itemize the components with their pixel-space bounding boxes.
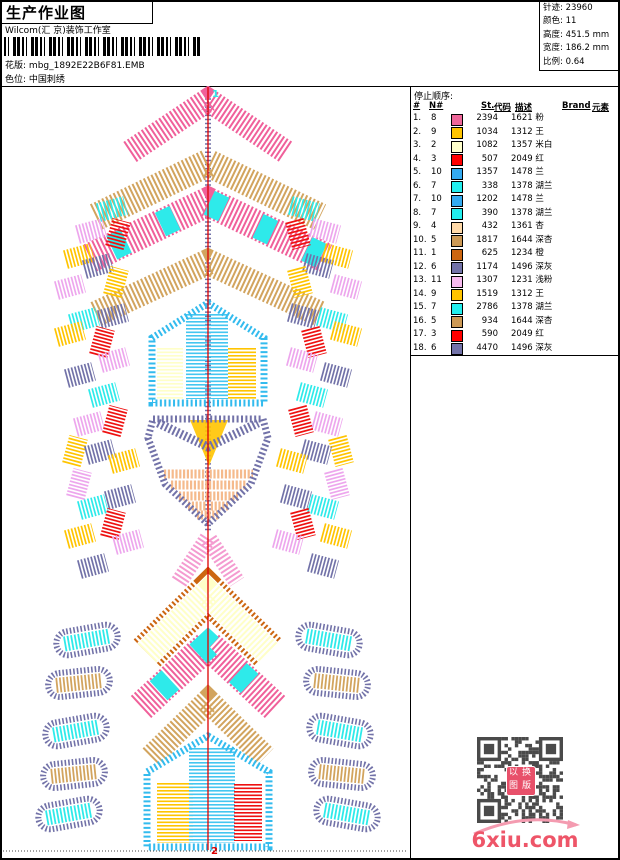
stop-stitches: 1174 xyxy=(464,261,498,275)
stop-row: 4. 3 507 2049 红 xyxy=(410,153,618,167)
stop-row: 5. 10 1357 1478 兰 xyxy=(410,166,618,180)
stop-row: 18. 6 4470 1496 深灰 xyxy=(410,342,618,356)
stop-row: 6. 7 338 1378 湖兰 xyxy=(410,180,618,194)
stop-stitches: 432 xyxy=(464,220,498,234)
thread-desc: 1312 王 xyxy=(511,288,544,302)
stop-needle: 6 xyxy=(431,261,436,275)
thread-color-swatch xyxy=(451,208,463,220)
thread-color-swatch xyxy=(451,303,463,315)
design-info-box: 针迹: 23960颜色: 11高度: 451.5 mm宽度: 186.2 mm比… xyxy=(539,2,619,71)
stop-row: 1. 8 2394 1621 粉 xyxy=(410,112,618,126)
info-value: 451.5 mm xyxy=(566,30,610,40)
qr-stamp-char: 换 xyxy=(522,769,531,778)
info-label: 颜色: xyxy=(543,16,563,26)
stop-stitches: 625 xyxy=(464,247,498,261)
stop-row: 7. 10 1202 1478 兰 xyxy=(410,193,618,207)
stop-needle: 3 xyxy=(431,328,436,342)
thread-desc: 1357 米白 xyxy=(511,139,552,153)
thread-desc: 1496 深灰 xyxy=(511,342,552,356)
pattern-file-line: 花版: mbg_1892E22B6F81.EMB xyxy=(5,58,145,71)
info-value: 11 xyxy=(566,16,577,26)
stop-seq: 5. xyxy=(413,166,421,180)
thread-color-swatch xyxy=(451,127,463,139)
stop-seq: 3. xyxy=(413,139,421,153)
info-row-0: 针迹: 23960 xyxy=(540,2,619,15)
info-row-1: 颜色: 11 xyxy=(540,15,619,28)
stop-row: 10. 5 1817 1644 深杏 xyxy=(410,234,618,248)
info-value: 23960 xyxy=(566,3,593,13)
stop-stitches: 507 xyxy=(464,153,498,167)
qr-stamp-char: 图 xyxy=(509,782,518,791)
thread-color-swatch xyxy=(451,330,463,342)
stop-needle: 7 xyxy=(431,207,436,221)
stop-row: 3. 2 1082 1357 米白 xyxy=(410,139,618,153)
thread-desc: 1231 浅粉 xyxy=(511,274,552,288)
thread-color-swatch xyxy=(451,168,463,180)
thread-color-swatch xyxy=(451,276,463,288)
thread-color-swatch xyxy=(451,316,463,328)
stop-needle: 10 xyxy=(431,166,442,180)
stop-needle: 6 xyxy=(431,342,436,356)
thread-color-swatch xyxy=(451,114,463,126)
thread-color-swatch xyxy=(451,181,463,193)
stop-seq: 6. xyxy=(413,180,421,194)
stop-seq: 11. xyxy=(413,247,427,261)
stop-stitches: 2394 xyxy=(464,112,498,126)
thread-desc: 1478 兰 xyxy=(511,166,544,180)
qr-center-stamp: 以换图版 xyxy=(506,766,536,796)
stop-stitches: 390 xyxy=(464,207,498,221)
thread-color-swatch xyxy=(451,195,463,207)
stop-seq: 13. xyxy=(413,274,427,288)
stop-row: 9. 4 432 1361 杏 xyxy=(410,220,618,234)
stop-stitches: 1202 xyxy=(464,193,498,207)
stop-stitches: 1817 xyxy=(464,234,498,248)
thread-desc: 1496 深灰 xyxy=(511,261,552,275)
thread-color-swatch xyxy=(451,141,463,153)
thread-desc: 1644 深杏 xyxy=(511,234,552,248)
stop-seq: 14. xyxy=(413,288,427,302)
info-row-4: 比例: 0.64 xyxy=(540,56,619,69)
info-value: 186.2 mm xyxy=(566,43,610,53)
stop-seq: 4. xyxy=(413,153,421,167)
stop-row: 15. 7 2786 1378 湖兰 xyxy=(410,301,618,315)
stop-stitches: 1082 xyxy=(464,139,498,153)
stop-needle: 5 xyxy=(431,234,436,248)
stop-seq: 15. xyxy=(413,301,427,315)
studio-name: Wilcom(汇 京)装饰工作室 xyxy=(5,23,111,36)
pattern-label: 花版: xyxy=(5,61,26,71)
thread-color-swatch xyxy=(451,235,463,247)
colorway-line: 色位: 中国刺绣 xyxy=(5,72,65,85)
thread-color-swatch xyxy=(451,249,463,261)
thread-desc: 1234 橙 xyxy=(511,247,544,261)
stop-seq: 10. xyxy=(413,234,427,248)
stop-seq: 8. xyxy=(413,207,421,221)
site-logo: 6xiu.com xyxy=(470,828,580,852)
thread-desc: 2049 红 xyxy=(511,328,544,342)
stop-row: 2. 9 1034 1312 王 xyxy=(410,126,618,140)
svg-text:2: 2 xyxy=(211,846,218,857)
stop-stitches: 1307 xyxy=(464,274,498,288)
thread-color-swatch xyxy=(451,289,463,301)
stop-col-Brand: Brand xyxy=(562,101,591,111)
stop-stitches: 1519 xyxy=(464,288,498,302)
page-title: 生产作业图 xyxy=(6,2,86,23)
stop-seq: 18. xyxy=(413,342,427,356)
info-label: 高度: xyxy=(543,30,563,40)
colorway-label: 色位: xyxy=(5,75,26,85)
stop-stitches: 338 xyxy=(464,180,498,194)
stop-needle: 8 xyxy=(431,112,436,126)
thread-desc: 1378 湖兰 xyxy=(511,207,552,221)
stop-stitches: 1034 xyxy=(464,126,498,140)
stop-col-St.: St. xyxy=(481,101,494,111)
stop-seq: 17. xyxy=(413,328,427,342)
stop-seq: 2. xyxy=(413,126,421,140)
stop-seq: 12. xyxy=(413,261,427,275)
colorway-value: 中国刺绣 xyxy=(29,75,65,85)
info-row-2: 高度: 451.5 mm xyxy=(540,29,619,42)
stop-seq: 1. xyxy=(413,112,421,126)
thread-color-swatch xyxy=(451,343,463,355)
info-label: 宽度: xyxy=(543,43,563,53)
stop-stitches: 1357 xyxy=(464,166,498,180)
stop-col-#: # xyxy=(413,101,420,111)
stop-needle: 11 xyxy=(431,274,442,288)
stop-row: 8. 7 390 1378 湖兰 xyxy=(410,207,618,221)
stop-row: 11. 1 625 1234 橙 xyxy=(410,247,618,261)
thread-desc: 1361 杏 xyxy=(511,220,544,234)
stop-needle: 9 xyxy=(431,288,436,302)
qr-stamp-char: 以 xyxy=(509,769,518,778)
thread-desc: 2049 红 xyxy=(511,153,544,167)
stop-needle: 10 xyxy=(431,193,442,207)
stop-needle: 5 xyxy=(431,315,436,329)
stop-needle: 7 xyxy=(431,180,436,194)
thread-color-swatch xyxy=(451,154,463,166)
stop-needle: 3 xyxy=(431,153,436,167)
thread-desc: 1621 粉 xyxy=(511,112,544,126)
stop-row: 12. 6 1174 1496 深灰 xyxy=(410,261,618,275)
thread-desc: 1312 王 xyxy=(511,126,544,140)
stop-needle: 4 xyxy=(431,220,436,234)
stop-needle: 7 xyxy=(431,301,436,315)
stop-needle: 1 xyxy=(431,247,436,261)
embroidery-design-canvas: 12 xyxy=(1,86,409,858)
thread-color-swatch xyxy=(451,222,463,234)
stop-stitches: 2786 xyxy=(464,301,498,315)
stop-table-body: 1. 8 2394 1621 粉 2. 9 1034 1312 王 3. 2 1… xyxy=(410,112,618,355)
stop-stitches: 934 xyxy=(464,315,498,329)
stop-row: 16. 5 934 1644 深杏 xyxy=(410,315,618,329)
stop-row: 14. 9 1519 1312 王 xyxy=(410,288,618,302)
stop-row: 17. 3 590 2049 红 xyxy=(410,328,618,342)
stop-needle: 2 xyxy=(431,139,436,153)
thread-desc: 1378 湖兰 xyxy=(511,180,552,194)
thread-color-swatch xyxy=(451,262,463,274)
stop-table-bottom-border xyxy=(410,355,618,356)
stop-seq: 7. xyxy=(413,193,421,207)
stop-row: 13. 11 1307 1231 浅粉 xyxy=(410,274,618,288)
info-row-3: 宽度: 186.2 mm xyxy=(540,42,619,55)
qr-stamp-char: 版 xyxy=(522,782,531,791)
info-label: 针迹: xyxy=(543,3,563,13)
stop-seq: 9. xyxy=(413,220,421,234)
stop-needle: 9 xyxy=(431,126,436,140)
stop-stitches: 590 xyxy=(464,328,498,342)
info-label: 比例: xyxy=(543,57,563,67)
thread-desc: 1644 深杏 xyxy=(511,315,552,329)
barcode xyxy=(4,37,200,56)
thread-desc: 1378 湖兰 xyxy=(511,301,552,315)
stop-col-N#: N# xyxy=(429,101,443,111)
pattern-value: mbg_1892E22B6F81.EMB xyxy=(29,61,145,71)
thread-desc: 1478 兰 xyxy=(511,193,544,207)
stop-seq: 16. xyxy=(413,315,427,329)
info-value: 0.64 xyxy=(566,57,585,67)
svg-text:1: 1 xyxy=(212,89,219,100)
stop-stitches: 4470 xyxy=(464,342,498,356)
